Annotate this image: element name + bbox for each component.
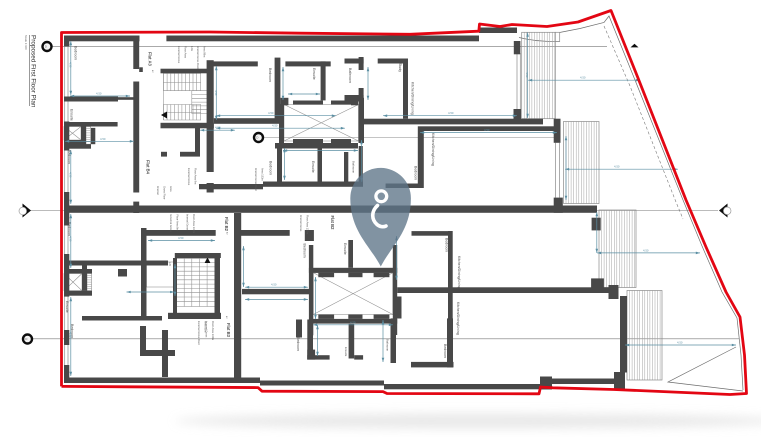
svg-text:Area 132m: Area 132m: [261, 168, 265, 181]
svg-text:4.50: 4.50: [614, 165, 620, 169]
svg-text:4.50: 4.50: [525, 72, 529, 78]
svg-text:External Gross: External Gross: [169, 215, 173, 233]
svg-text:Floor Area 9m: Floor Area 9m: [194, 168, 198, 184]
svg-text:4.50: 4.50: [350, 320, 356, 324]
svg-text:Kitchen/Dining/Living: Kitchen/Dining/Living: [457, 256, 461, 289]
svg-text:Kitchen/Dining/Living: Kitchen/Dining/Living: [456, 302, 460, 335]
svg-text:Area 98m: Area 98m: [203, 46, 207, 57]
svg-text:Flat A3: Flat A3: [148, 52, 153, 66]
svg-text:Floor Area 132m: Floor Area 132m: [192, 214, 196, 233]
svg-text:Bedroom: Bedroom: [268, 68, 272, 82]
svg-text:Kitchen/Dining/Living: Kitchen/Dining/Living: [431, 133, 435, 166]
svg-text:Internal Gross: Internal Gross: [205, 321, 209, 338]
svg-text:Lift: Lift: [168, 262, 172, 266]
svg-text:Flat B3: Flat B3: [226, 323, 231, 338]
svg-text:4.50: 4.50: [580, 76, 586, 80]
svg-text:Ensuite: Ensuite: [312, 68, 316, 80]
svg-text:Floor Area: Floor Area: [184, 46, 188, 59]
svg-text:Internal Gross Floor: Internal Gross Floor: [254, 168, 258, 191]
svg-text:Internal: Internal: [156, 186, 160, 195]
svg-text:External Gross: External Gross: [177, 46, 181, 64]
svg-text:4.50: 4.50: [271, 283, 277, 287]
svg-text:4.50: 4.50: [100, 137, 106, 141]
svg-text:Scale 1:100: Scale 1:100: [24, 35, 28, 50]
svg-text:Floor Area 132m: Floor Area 132m: [211, 321, 215, 340]
svg-text:4.50: 4.50: [215, 126, 221, 130]
svg-text:Ensuite: Ensuite: [92, 129, 95, 137]
svg-text:Internal Gross Floor: Internal Gross Floor: [196, 46, 200, 69]
svg-text:4.50: 4.50: [68, 62, 72, 68]
svg-text:Study: Study: [398, 63, 402, 72]
svg-text:4.50: 4.50: [68, 172, 72, 178]
svg-text:4.50: 4.50: [178, 236, 184, 240]
svg-text:Bedroom: Bedroom: [303, 244, 307, 258]
svg-text:Bathroom: Bathroom: [386, 339, 390, 352]
svg-text:External Gross Floor: External Gross Floor: [197, 321, 201, 345]
svg-text:4.50: 4.50: [96, 92, 102, 96]
svg-text:Bedroom: Bedroom: [67, 150, 71, 164]
svg-text:4.50: 4.50: [214, 90, 218, 96]
svg-text:4.50: 4.50: [677, 341, 683, 345]
svg-text:Ensuite: Ensuite: [65, 301, 69, 313]
svg-text:Bedroom: Bedroom: [414, 166, 418, 180]
svg-text:Proposed First Floor Plan: Proposed First Floor Plan: [30, 35, 37, 108]
svg-text:Floor Area 132m: Floor Area 132m: [306, 215, 310, 234]
svg-text:Area: Area: [169, 186, 173, 192]
svg-text:4.50: 4.50: [268, 111, 274, 115]
svg-text:Floor Area 9m: Floor Area 9m: [176, 215, 180, 231]
svg-text:4.50: 4.50: [68, 236, 72, 242]
svg-text:Ensuite: Ensuite: [70, 109, 74, 121]
svg-text:Flat B2: Flat B2: [224, 217, 229, 232]
svg-text:Internal Gross: Internal Gross: [186, 214, 190, 231]
svg-text:Bedroom: Bedroom: [296, 337, 300, 351]
svg-text:4.50: 4.50: [448, 111, 454, 115]
svg-text:Kitchen/Dining/Living: Kitchen/Dining/Living: [411, 82, 415, 115]
svg-text:12m: 12m: [190, 46, 194, 51]
svg-text:Bathroom: Bathroom: [352, 161, 356, 174]
svg-text:Flat B4: Flat B4: [146, 160, 151, 175]
svg-text:Bedroom: Bedroom: [67, 222, 71, 236]
svg-text:Gross Floor: Gross Floor: [163, 186, 167, 200]
svg-text:Internal Gross: Internal Gross: [299, 215, 303, 232]
svg-text:Flat B2: Flat B2: [330, 216, 335, 231]
svg-text:Bedroom: Bedroom: [70, 324, 74, 338]
svg-text:Bathroom: Bathroom: [348, 68, 352, 83]
svg-text:Ensuite: Ensuite: [311, 161, 315, 173]
svg-text:4.50: 4.50: [484, 128, 490, 132]
svg-text:Ensuite: Ensuite: [343, 243, 347, 255]
svg-text:Bedroom: Bedroom: [445, 238, 449, 252]
svg-text:4.50: 4.50: [272, 124, 278, 128]
svg-text:Bedroom: Bedroom: [74, 46, 78, 60]
svg-text:Ensuite: Ensuite: [344, 347, 348, 357]
svg-text:Bedroom: Bedroom: [269, 161, 273, 175]
svg-text:External Gross: External Gross: [187, 168, 191, 186]
svg-text:4.50: 4.50: [643, 248, 649, 252]
svg-text:Bedroom: Bedroom: [443, 344, 447, 358]
